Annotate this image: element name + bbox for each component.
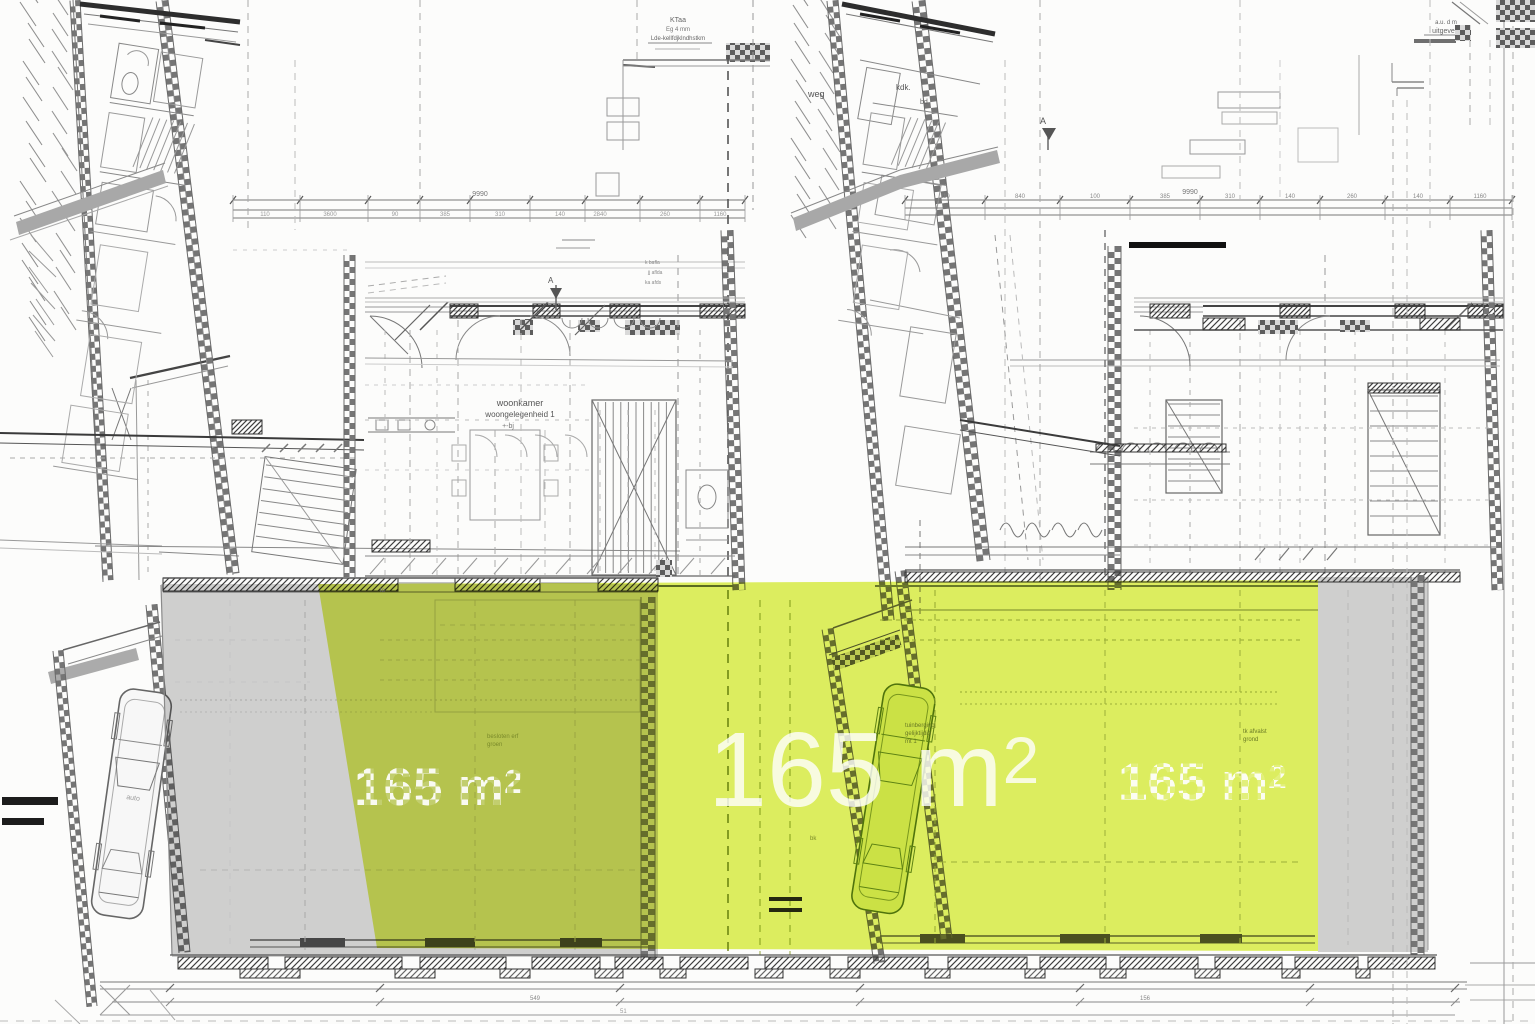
svg-text:besloten erf: besloten erf xyxy=(487,734,519,740)
svg-text:260: 260 xyxy=(1347,194,1358,200)
svg-text:jj aflda: jj aflda xyxy=(647,270,663,276)
svg-text:3600: 3600 xyxy=(323,212,337,218)
svg-text:165 m2: 165 m2 xyxy=(708,711,1039,829)
svg-text:165 m2: 165 m2 xyxy=(354,758,523,817)
svg-text:385: 385 xyxy=(1160,194,1171,200)
svg-text:260: 260 xyxy=(660,212,671,218)
svg-text:9990: 9990 xyxy=(1182,189,1198,196)
svg-text:840: 840 xyxy=(1015,194,1026,200)
svg-text:140: 140 xyxy=(1413,194,1424,200)
svg-text:k bafla: k bafla xyxy=(645,260,660,266)
svg-text:310: 310 xyxy=(495,212,506,218)
svg-text:tuinberging: tuinberging xyxy=(905,723,935,729)
svg-text:woonkamer: woonkamer xyxy=(496,398,544,408)
svg-text:385: 385 xyxy=(440,212,451,218)
svg-text:gelijktijdig: gelijktijdig xyxy=(905,731,931,737)
svg-text:1160: 1160 xyxy=(1474,194,1488,200)
svg-text:to: to xyxy=(380,588,386,594)
svg-text:a.u. d m: a.u. d m xyxy=(1435,20,1457,26)
svg-text:groen: groen xyxy=(487,742,502,748)
svg-text:KTaa: KTaa xyxy=(670,17,686,24)
svg-text:tk afvalst: tk afvalst xyxy=(1243,729,1267,735)
svg-text:110: 110 xyxy=(940,194,950,200)
svg-text:Lde-kellfdjklndhstkm: Lde-kellfdjklndhstkm xyxy=(651,36,705,42)
svg-text:bd: bd xyxy=(920,99,928,106)
svg-text:51: 51 xyxy=(620,1009,627,1015)
svg-text:165 m2: 165 m2 xyxy=(1118,753,1287,812)
svg-text:kdk.: kdk. xyxy=(896,83,911,92)
svg-text:ka afds: ka afds xyxy=(645,280,662,286)
svg-text:Eg 4 mm: Eg 4 mm xyxy=(666,27,690,33)
svg-text:140: 140 xyxy=(555,212,566,218)
svg-text:bk: bk xyxy=(810,836,817,842)
svg-text:110: 110 xyxy=(260,212,270,218)
svg-text:140: 140 xyxy=(1285,194,1296,200)
svg-text:90: 90 xyxy=(392,212,399,218)
svg-text:mt 1: mt 1 xyxy=(905,739,917,745)
svg-text:A: A xyxy=(1040,116,1046,126)
svg-text:woongelegenheid 1: woongelegenheid 1 xyxy=(484,410,555,419)
svg-text:A: A xyxy=(548,276,554,285)
svg-text:310: 310 xyxy=(1225,194,1236,200)
svg-text:2840: 2840 xyxy=(593,212,607,218)
svg-text:+-bj: +-bj xyxy=(502,423,514,430)
svg-text:weg: weg xyxy=(807,89,825,99)
svg-text:1160: 1160 xyxy=(714,212,728,218)
svg-text:100: 100 xyxy=(1090,194,1101,200)
svg-text:156: 156 xyxy=(1140,996,1151,1002)
svg-text:549: 549 xyxy=(530,996,541,1002)
svg-text:grond: grond xyxy=(1243,737,1258,743)
svg-text:9990: 9990 xyxy=(472,191,488,198)
